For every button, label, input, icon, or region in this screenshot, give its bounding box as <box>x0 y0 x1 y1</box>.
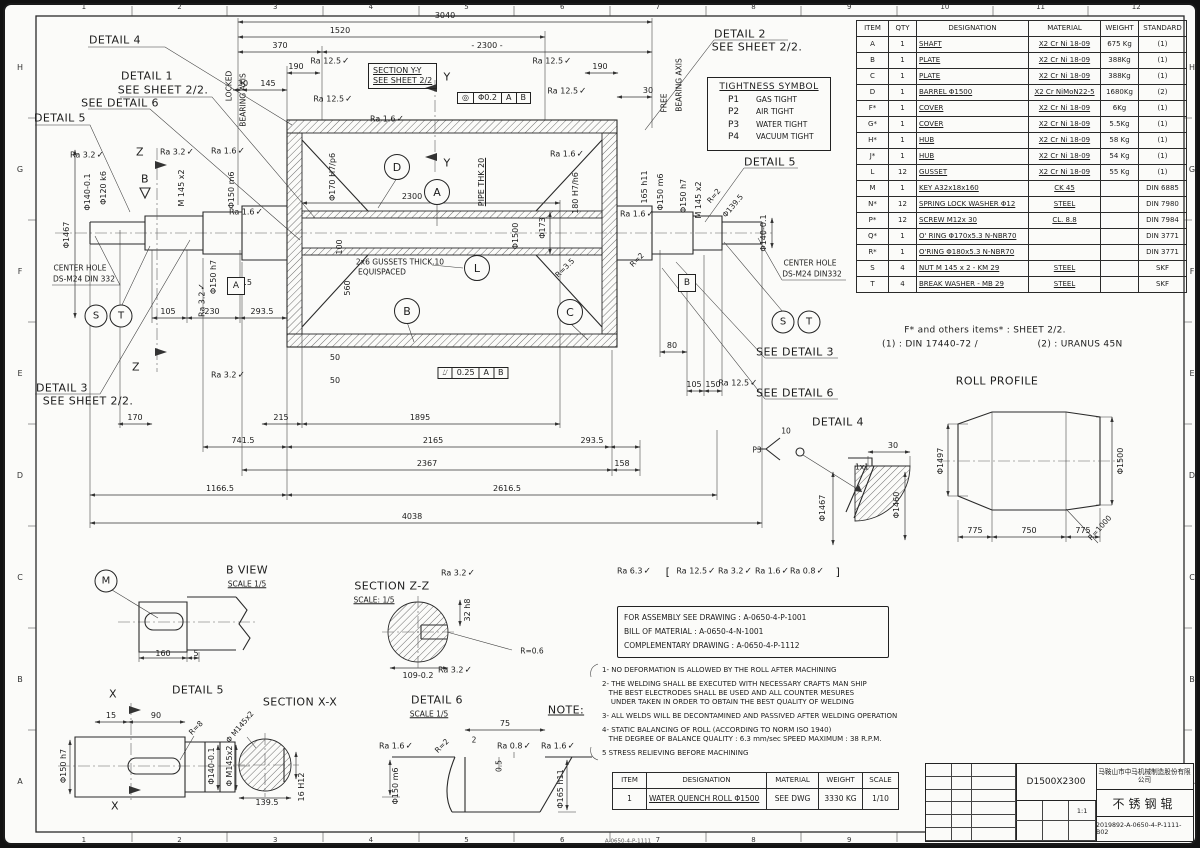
table-cell: 388Kg <box>1101 69 1139 85</box>
annotation: Ra 3.2 <box>160 149 194 158</box>
annotation: 190 <box>592 63 607 71</box>
table-cell <box>1101 213 1139 229</box>
table-cell: X2 Cr Ni 18-09 <box>1029 165 1101 181</box>
title-block-middle: D1500X2300 1:1 <box>1016 764 1097 841</box>
table-cell: 1 <box>889 229 917 245</box>
table-cell: SEE DWG <box>767 789 819 810</box>
roll-size-label: D1500X2300 <box>1016 764 1096 801</box>
note-paragraph: 1- NO DEFORMATION IS ALLOWED BY THE ROLL… <box>602 666 902 675</box>
annotation: B <box>141 174 149 185</box>
table-cell <box>1029 229 1101 245</box>
table-cell: N* <box>857 197 889 213</box>
tolerance-cell: B <box>517 93 531 103</box>
zone-row-label: B <box>12 628 28 730</box>
notes-block: 1- NO DEFORMATION IS ALLOWED BY THE ROLL… <box>602 666 902 763</box>
tightness-desc: WATER TIGHT <box>756 120 807 130</box>
zone-col-label: 10 <box>897 3 993 11</box>
table-cell: STEEL <box>1029 197 1101 213</box>
tightness-row: P2AIR TIGHT <box>728 107 830 117</box>
table-cell <box>1101 197 1139 213</box>
table-cell: 1 <box>889 37 917 53</box>
annotation: 10 <box>781 427 791 435</box>
annotation: Ra 1.6 <box>379 743 413 752</box>
table-cell: BARREL Φ1500 <box>917 85 1029 101</box>
table-cell: C <box>857 69 889 85</box>
annotation: 775 <box>967 527 982 535</box>
table-cell: 1 <box>889 245 917 261</box>
section-yy-line1: SECTION Y-Y <box>373 66 432 76</box>
table-cell: 388Kg <box>1101 53 1139 69</box>
table-row: N*12SPRING LOCK WASHER Φ12STEELDIN 7980 <box>857 197 1187 213</box>
table-cell <box>1101 181 1139 197</box>
table-cell: HUB <box>917 149 1029 165</box>
table-cell: (1) <box>1139 53 1187 69</box>
note-line: 3- ALL WELDS WILL BE DECONTAMINED AND PA… <box>602 712 902 721</box>
annotation: BEARING AXIS <box>675 58 683 112</box>
assembly-reference-line: BILL OF MATERIAL : A-0650-4-N-1001 <box>624 625 882 639</box>
annotation: Ra 1.6 <box>550 151 584 160</box>
drawing-number: 2019892-A-0650-4-P-1111-B02 <box>1096 817 1193 841</box>
assembly-reference-box: FOR ASSEMBLY SEE DRAWING : A-0650-4-P-10… <box>617 606 889 658</box>
table-cell: X2 Cr Ni 18-09 <box>1029 117 1101 133</box>
table-cell: S <box>857 261 889 277</box>
zone-col-label: 7 <box>610 3 706 11</box>
table-cell: 4 <box>889 277 917 293</box>
tightness-desc: AIR TIGHT <box>756 107 794 117</box>
annotation: 100 <box>336 239 344 254</box>
annotation: Φ1467 <box>819 495 827 522</box>
zone-row-label: H <box>12 16 28 118</box>
table-cell: X2 Cr Ni 18-09 <box>1029 53 1101 69</box>
annotation: 160 <box>155 650 170 658</box>
zone-columns-top: 123456789101112 <box>36 3 1184 11</box>
tightness-code: P4 <box>728 132 756 142</box>
annotation: 2 <box>472 736 477 744</box>
note-line: 4- STATIC BALANCING OF ROLL (ACCORDING T… <box>602 726 902 735</box>
balloon-t: T <box>798 311 821 334</box>
annotation: ROLL PROFILE <box>956 376 1038 387</box>
table-cell <box>1101 261 1139 277</box>
zone-row-label: F <box>12 220 28 322</box>
table-row: 1WATER QUENCH ROLL Φ1500SEE DWG3330 KG1/… <box>613 789 899 810</box>
table-cell: X2 Cr Ni 18-09 <box>1029 37 1101 53</box>
table-cell: (1) <box>1139 165 1187 181</box>
annotation: 105 <box>160 308 175 316</box>
table-cell: SKF <box>1139 261 1187 277</box>
annotation: A-0650-4-P-1111 <box>605 839 651 845</box>
annotation: 741.5 <box>232 437 255 445</box>
zone-row-label: C <box>1184 526 1200 628</box>
table-row: F*1COVERX2 Cr Ni 18-096Kg(1) <box>857 101 1187 117</box>
annotation: Y <box>443 72 450 83</box>
annotation: SECTION Z-Z <box>354 581 429 592</box>
annotation: DETAIL 6 <box>411 695 463 706</box>
tightness-row: P4VACUUM TIGHT <box>728 132 830 142</box>
annotation: Φ M145x2 <box>226 746 234 787</box>
note-line: THE BEST ELECTRODES SHALL BE USED AND AL… <box>602 689 902 698</box>
annotation: Ra 3.2 <box>441 570 475 579</box>
table-cell: (2) <box>1139 85 1187 101</box>
annotation: Φ170 H7/p6 <box>329 153 337 201</box>
annotation: Ra 1.6 <box>755 568 789 577</box>
annotation: Ra 12.5 <box>547 88 586 97</box>
annotation: 50 <box>330 354 340 362</box>
annotation: 750 <box>1021 527 1036 535</box>
table-cell: X2 Cr Ni 18-09 <box>1029 133 1101 149</box>
table-cell: 1 <box>889 133 917 149</box>
annotation: NOTE: <box>548 705 584 716</box>
table-cell: 675 Kg <box>1101 37 1139 53</box>
parts-header-cell: DESIGNATION <box>917 21 1029 37</box>
annotation: LOCKED <box>225 71 233 101</box>
annotation: Z <box>136 147 144 158</box>
table-cell: L <box>857 165 889 181</box>
annotation: 215 <box>273 414 288 422</box>
table-cell: PLATE <box>917 53 1029 69</box>
table-cell: 1 <box>889 69 917 85</box>
table-cell: HUB <box>917 133 1029 149</box>
table-cell: 12 <box>889 213 917 229</box>
zone-row-label: C <box>12 526 28 628</box>
table-cell: 12 <box>889 165 917 181</box>
annotation: 32 h8 <box>464 599 472 622</box>
table-cell: (1) <box>1139 69 1187 85</box>
tightness-row: P1GAS TIGHT <box>728 95 830 105</box>
annotation: Φ150 h7 <box>680 179 688 213</box>
note-line: UNDER TAKEN IN ORDER TO OBTAIN THE BEST … <box>602 698 902 707</box>
tolerance-cell: 0.25 <box>453 368 480 378</box>
annotation: Φ1500 <box>1117 448 1125 475</box>
note-paragraph: 2- THE WELDING SHALL BE EXECUTED WITH NE… <box>602 680 902 707</box>
table-cell: CL. 8.8 <box>1029 213 1101 229</box>
item-header-cell: SCALE <box>863 773 899 789</box>
annotation: Ra 3.2 <box>70 152 104 161</box>
zone-col-label: 3 <box>227 836 323 844</box>
annotation: 1520 <box>330 27 350 35</box>
zone-col-label: 6 <box>514 836 610 844</box>
table-cell: 12 <box>889 197 917 213</box>
annotation: 90 <box>151 712 161 720</box>
annotation: 139.5 <box>256 799 279 807</box>
annotation: SEE SHEET 2/2. <box>712 42 803 53</box>
balloon-b: B <box>394 298 420 324</box>
note-paragraph: 3- ALL WELDS WILL BE DECONTAMINED AND PA… <box>602 712 902 721</box>
table-row: B1PLATEX2 Cr Ni 18-09388Kg(1) <box>857 53 1187 69</box>
annotation: Φ150 h7 <box>210 260 218 294</box>
table-cell <box>1029 245 1101 261</box>
table-cell: T <box>857 277 889 293</box>
zone-col-label: 8 <box>706 3 802 11</box>
section-yy-note: SECTION Y-Y SEE SHEET 2/2 <box>368 63 437 89</box>
annotation: PIPE THK 20 <box>478 158 486 206</box>
annotation: Φ150 h7 <box>60 749 68 783</box>
zone-col-label: 2 <box>132 3 228 11</box>
annotation: 2616.5 <box>493 485 521 493</box>
annotation: DETAIL 4 <box>89 35 141 46</box>
table-cell: DIN 3771 <box>1139 229 1187 245</box>
annotation: Φ173 <box>539 217 547 239</box>
annotation: DETAIL 2 <box>714 29 766 40</box>
table-cell: A <box>857 37 889 53</box>
annotation: 165 h11 <box>641 170 649 203</box>
item-header-cell: ITEM <box>613 773 647 789</box>
assembly-reference-line: FOR ASSEMBLY SEE DRAWING : A-0650-4-P-10… <box>624 611 882 625</box>
annotation: ] <box>836 567 841 578</box>
title-block: D1500X2300 1:1 马鞍山市中马机械制造股份有限公司 不锈钢辊 201… <box>925 763 1194 842</box>
table-cell: M <box>857 181 889 197</box>
product-name: 不锈钢辊 <box>1096 790 1193 817</box>
table-cell: DIN 6885 <box>1139 181 1187 197</box>
table-cell: DIN 7980 <box>1139 197 1187 213</box>
annotation: Ra 12.5 <box>718 380 757 389</box>
annotation: Ra 3.2 <box>438 667 472 676</box>
geometric-tolerance-frame: ◎Φ0.2AB <box>457 92 531 104</box>
note-paragraph: 5 STRESS RELIEVING BEFORE MACHINING <box>602 749 902 758</box>
table-cell: 1 <box>889 181 917 197</box>
table-cell: 1 <box>613 789 647 810</box>
zone-col-label: 6 <box>514 3 610 11</box>
tolerance-cell: ◎ <box>458 93 474 103</box>
table-cell: 55 Kg <box>1101 165 1139 181</box>
table-cell: SHAFT <box>917 37 1029 53</box>
note-line: 1- NO DEFORMATION IS ALLOWED BY THE ROLL… <box>602 666 902 675</box>
annotation: Ra 3.2 <box>718 568 752 577</box>
table-cell: COVER <box>917 117 1029 133</box>
table-cell: STEEL <box>1029 261 1101 277</box>
table-cell: 3330 KG <box>819 789 863 810</box>
annotation: M 145 x2 <box>695 181 703 218</box>
annotation: 1x1 <box>855 463 869 471</box>
annotation: SEE DETAIL 6 <box>756 388 834 399</box>
zone-col-label: 5 <box>419 836 515 844</box>
annotation: 30 <box>238 80 248 88</box>
annotation: 30 <box>643 87 653 95</box>
zone-col-label: 1 <box>36 836 132 844</box>
zone-row-label: E <box>1184 322 1200 424</box>
item-table-header: ITEMDESIGNATIONMATERIALWEIGHTSCALE <box>613 773 899 789</box>
table-row: P*12SCREW M12x 30CL. 8.8DIN 7984 <box>857 213 1187 229</box>
annotation: DS-M24 DIN 332 <box>53 275 115 283</box>
table-cell: X2 Cr NiMoN22-5 <box>1029 85 1101 101</box>
annotation: DETAIL 1 <box>121 71 173 82</box>
annotation: 5 <box>193 650 198 658</box>
table-cell: 1680Kg <box>1101 85 1139 101</box>
table-row: T4BREAK WASHER - MB 29STEELSKF <box>857 277 1187 293</box>
annotation: 170 <box>127 414 142 422</box>
table-cell: DIN 3771 <box>1139 245 1187 261</box>
annotation: 2165 <box>423 437 443 445</box>
zone-col-label: 9 <box>801 836 897 844</box>
table-cell: G* <box>857 117 889 133</box>
table-cell: F* <box>857 101 889 117</box>
table-cell: (1) <box>1139 149 1187 165</box>
table-cell: 1 <box>889 149 917 165</box>
balloon-m: M <box>95 570 118 593</box>
annotation: Φ1460 <box>893 492 901 519</box>
annotation: SCALE 1/5 <box>410 710 449 718</box>
table-cell: NUT M 145 x 2 - KM 29 <box>917 261 1029 277</box>
annotation: Φ165 h11 <box>557 769 565 808</box>
annotation: 2367 <box>417 460 437 468</box>
parts-list-table: ITEMQTYDESIGNATIONMATERIALWEIGHTSTANDARD… <box>856 20 1187 293</box>
table-row: R*1O'RING Φ180x5.3 N-NBR70DIN 3771 <box>857 245 1187 261</box>
parts-header-cell: QTY <box>889 21 917 37</box>
annotation: EQUISPACED <box>358 268 406 276</box>
table-cell: D <box>857 85 889 101</box>
table-cell: 1 <box>889 85 917 101</box>
annotation: Z <box>132 362 140 373</box>
item-header-cell: MATERIAL <box>767 773 819 789</box>
table-cell: 5.5Kg <box>1101 117 1139 133</box>
zone-col-label: 11 <box>993 3 1089 11</box>
annotation: X <box>111 801 119 812</box>
annotation: Ra 0.8 <box>497 743 531 752</box>
table-row: S4NUT M 145 x 2 - KM 29STEELSKF <box>857 261 1187 277</box>
annotation: Ra 12.5 <box>532 58 571 67</box>
annotation: 50 <box>330 377 340 385</box>
annotation: 1166.5 <box>206 485 234 493</box>
zone-col-label: 3 <box>227 3 323 11</box>
annotation: 293.5 <box>251 308 274 316</box>
annotation: 560 <box>344 280 352 295</box>
annotation: Φ1467 <box>63 222 71 249</box>
zone-col-label: 4 <box>323 836 419 844</box>
annotation: Φ150 m6 <box>392 768 400 805</box>
item-header-cell: DESIGNATION <box>647 773 767 789</box>
table-cell: KEY A32x18x160 <box>917 181 1029 197</box>
annotation: Φ1497 <box>937 448 945 475</box>
table-row: D1BARREL Φ1500X2 Cr NiMoN22-51680Kg(2) <box>857 85 1187 101</box>
annotation: 30 <box>888 442 898 450</box>
parts-header-cell: ITEM <box>857 21 889 37</box>
table-cell: BREAK WASHER - MB 29 <box>917 277 1029 293</box>
table-cell: DIN 7984 <box>1139 213 1187 229</box>
annotation: X <box>109 689 117 700</box>
table-cell: 1 <box>889 117 917 133</box>
annotation: SCALE 1/5 <box>228 580 267 588</box>
annotation: Ra 12.5 <box>310 58 349 67</box>
table-cell: COVER <box>917 101 1029 117</box>
table-cell: J* <box>857 149 889 165</box>
annotation: Φ120 k6 <box>100 171 108 205</box>
zone-col-label: 5 <box>419 3 515 11</box>
zone-col-label: 4 <box>323 3 419 11</box>
table-cell <box>1101 277 1139 293</box>
table-row: L12GUSSETX2 Cr Ni 18-0955 Kg(1) <box>857 165 1187 181</box>
annotation: Ra 1.6 <box>620 211 654 220</box>
annotation: - 2300 - <box>471 42 502 50</box>
table-row: M1KEY A32x18x160CK 45DIN 6885 <box>857 181 1187 197</box>
table-cell: PLATE <box>917 69 1029 85</box>
zone-col-label: 2 <box>132 836 228 844</box>
zone-col-label: 12 <box>1088 3 1184 11</box>
table-cell: Q* <box>857 229 889 245</box>
annotation: CENTER HOLE <box>54 264 107 272</box>
tightness-code: P1 <box>728 95 756 105</box>
zone-rows-left: HGFEDCBA <box>12 16 28 832</box>
tightness-desc: VACUUM TIGHT <box>756 132 814 142</box>
table-row: J*1HUBX2 Cr Ni 18-0954 Kg(1) <box>857 149 1187 165</box>
table-row: G*1COVERX2 Cr Ni 18-095.5Kg(1) <box>857 117 1187 133</box>
datum-a: A <box>227 277 245 295</box>
table-cell: X2 Cr Ni 18-09 <box>1029 101 1101 117</box>
annotation: 293.5 <box>581 437 604 445</box>
zone-row-label: D <box>12 424 28 526</box>
table-cell: 1/10 <box>863 789 899 810</box>
annotation: 75 <box>500 720 510 728</box>
annotation: B VIEW <box>226 565 268 576</box>
table-row: H*1HUBX2 Cr Ni 18-0958 Kg(1) <box>857 133 1187 149</box>
note-line: THE DEGREE OF BALANCE QUALITY : 6.3 mm/s… <box>602 735 902 744</box>
company-name: 马鞍山市中马机械制造股份有限公司 <box>1096 764 1193 790</box>
balloon-s: S <box>772 311 795 334</box>
table-cell: STEEL <box>1029 277 1101 293</box>
parts-header-cell: WEIGHT <box>1101 21 1139 37</box>
table-cell: P* <box>857 213 889 229</box>
annotation: 3040 <box>435 12 455 20</box>
item-table: ITEMDESIGNATIONMATERIALWEIGHTSCALE 1WATE… <box>612 772 899 810</box>
zone-col-label: 1 <box>36 3 132 11</box>
annotation: Ra 1.6 <box>370 116 404 125</box>
tolerance-cell: B <box>494 368 508 378</box>
zone-row-label: B <box>1184 628 1200 730</box>
table-cell: 4 <box>889 261 917 277</box>
annotation: Ra 3.2 <box>211 372 245 381</box>
annotation: Ra 6.3 <box>617 568 651 577</box>
table-row: Q*1O' RING Φ170x5.3 N-NBR70DIN 3771 <box>857 229 1187 245</box>
annotation: F* and others items* : SHEET 2/2. <box>904 327 1066 336</box>
annotation: FREE <box>660 93 668 112</box>
table-cell: (1) <box>1139 133 1187 149</box>
table-cell: B <box>857 53 889 69</box>
annotation: 4038 <box>402 513 422 521</box>
annotation: DETAIL 3 <box>36 383 88 394</box>
table-cell: (1) <box>1139 37 1187 53</box>
annotation: SECTION X-X <box>263 697 337 708</box>
annotation: Ra 1.6 <box>229 209 263 218</box>
annotation: Φ140-0.1 <box>208 747 216 784</box>
geometric-tolerance-frame: ⌰0.25AB <box>437 367 508 379</box>
annotation: 2x6 GUSSETS THICK.10 <box>356 258 444 266</box>
tightness-title: TIGHTNESS SYMBOL <box>708 82 830 92</box>
tightness-symbol-box: TIGHTNESS SYMBOL P1GAS TIGHTP2AIR TIGHTP… <box>707 77 831 151</box>
table-cell: SPRING LOCK WASHER Φ12 <box>917 197 1029 213</box>
table-row: C1PLATEX2 Cr Ni 18-09388Kg(1) <box>857 69 1187 85</box>
section-yy-line2: SEE SHEET 2/2 <box>373 76 432 86</box>
annotation: DETAIL 5 <box>744 157 796 168</box>
note-line: 5 STRESS RELIEVING BEFORE MACHINING <box>602 749 902 758</box>
item-header-cell: WEIGHT <box>819 773 863 789</box>
annotation: DETAIL 4 <box>812 417 864 428</box>
annotation: Φ140-0.1 <box>760 214 768 251</box>
zone-col-label: 8 <box>706 836 802 844</box>
annotation: DETAIL 5 <box>172 685 224 696</box>
zone-row-label: G <box>12 118 28 220</box>
table-cell: 6Kg <box>1101 101 1139 117</box>
annotation: Φ150 m6 <box>657 174 665 211</box>
table-cell: SCREW M12x 30 <box>917 213 1029 229</box>
zone-row-label: E <box>12 322 28 424</box>
table-cell: WATER QUENCH ROLL Φ1500 <box>647 789 767 810</box>
annotation: 1895 <box>410 414 430 422</box>
annotation: Y <box>443 158 450 169</box>
annotation: DS-M24 DIN332 <box>782 270 842 278</box>
table-cell: 58 Kg <box>1101 133 1139 149</box>
assembly-reference-line: COMPLEMENTARY DRAWING : A-0650-4-P-1112 <box>624 639 882 653</box>
tightness-code: P2 <box>728 107 756 117</box>
title-block-right: 马鞍山市中马机械制造股份有限公司 不锈钢辊 2019892-A-0650-4-P… <box>1096 764 1193 841</box>
annotation: SEE DETAIL 3 <box>756 347 834 358</box>
